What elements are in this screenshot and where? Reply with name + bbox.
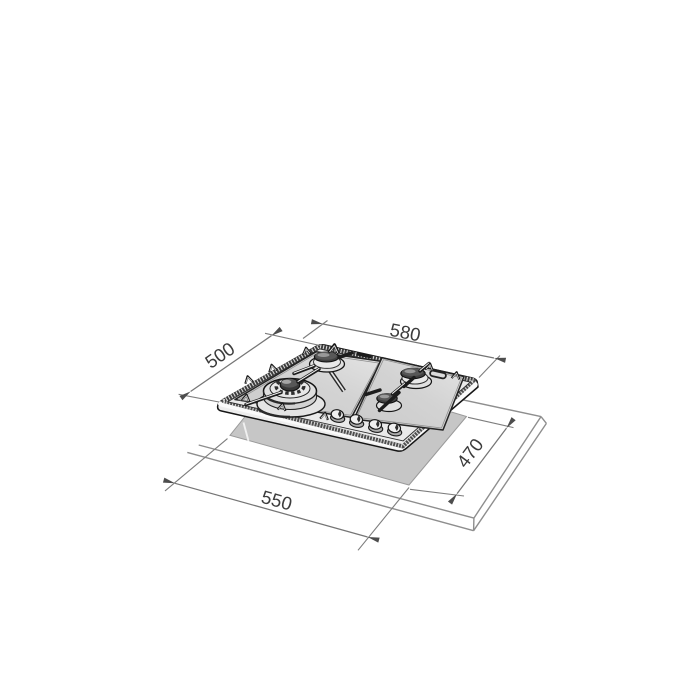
svg-text:550: 550 <box>259 486 294 515</box>
svg-text:470: 470 <box>452 434 487 471</box>
svg-text:500: 500 <box>201 338 238 373</box>
svg-text:580: 580 <box>388 319 422 346</box>
